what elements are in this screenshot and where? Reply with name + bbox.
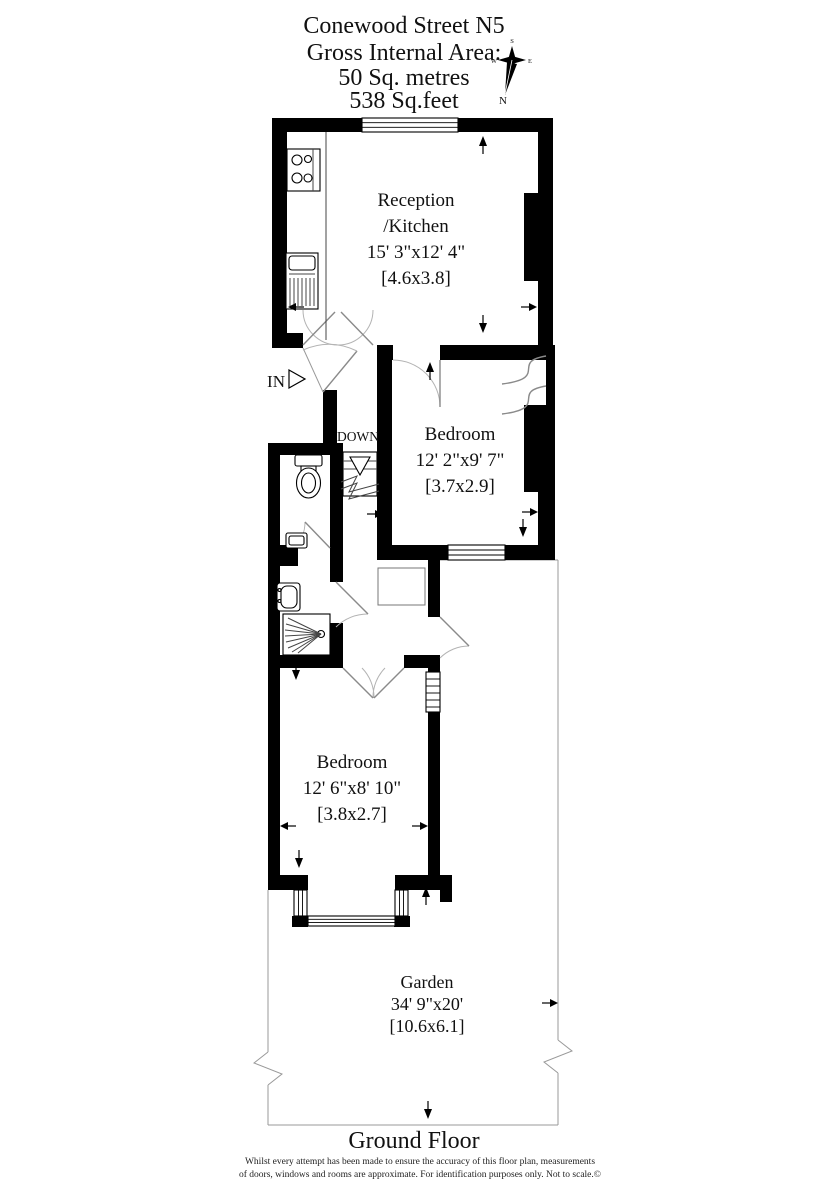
compass-east-label: E <box>528 58 532 65</box>
garden-dims: 34' 9"x20' <box>391 994 463 1014</box>
bedroom1-door <box>393 360 440 407</box>
in-label: IN <box>267 372 285 391</box>
reception-name-line2: /Kitchen <box>383 216 449 237</box>
measure-arrow <box>280 822 296 830</box>
measure-arrow <box>424 1101 432 1119</box>
title-line-2: Gross Internal Area: <box>307 40 502 66</box>
in-arrow-icon <box>289 370 305 388</box>
down-label: DOWN <box>337 429 379 444</box>
title-line-1: Conewood Street N5 <box>303 13 504 39</box>
measure-arrow <box>521 303 537 311</box>
toilet-icon <box>295 455 322 498</box>
compass-north-label: N <box>499 95 507 107</box>
measure-arrow <box>479 315 487 333</box>
window-reception-top <box>362 118 458 132</box>
measure-arrow <box>542 999 558 1007</box>
bedroom1-metric: [3.7x2.9] <box>425 476 495 497</box>
shower-icon <box>283 614 330 655</box>
room-label-bedroom2: Bedroom 12' 6"x8' 10" [3.8x2.7] <box>303 752 401 825</box>
bedroom2-metric: [3.8x2.7] <box>317 804 387 825</box>
disclaimer-line2: of doors, windows and rooms are approxim… <box>239 1169 601 1180</box>
shower-room-fixtures <box>277 583 330 655</box>
garden-name: Garden <box>401 972 454 992</box>
window-bedroom1-bottom <box>448 545 505 560</box>
hall-cupboard <box>378 568 425 605</box>
bay-window-bedroom2 <box>294 890 408 926</box>
bedroom2-double-doors <box>343 668 404 698</box>
measure-arrow <box>295 850 303 868</box>
measure-arrow <box>522 508 538 516</box>
walls <box>268 118 555 927</box>
entry-french-doors <box>303 310 373 345</box>
stove-icon <box>287 149 320 191</box>
footer: Ground Floor Whilst every attempt has be… <box>239 1128 601 1180</box>
window-hall-garden <box>426 672 440 712</box>
bedroom2-dims: 12' 6"x8' 10" <box>303 778 401 799</box>
room-label-reception: Reception /Kitchen 15' 3"x12' 4" [4.6x3.… <box>367 190 465 289</box>
floorplan-page: Conewood Street N5 Gross Internal Area: … <box>0 0 835 1200</box>
bedroom2-name: Bedroom <box>317 752 388 773</box>
bedroom1-dims: 12' 2"x9' 7" <box>416 450 505 471</box>
measure-arrow <box>426 362 434 380</box>
stairs-down <box>341 452 379 499</box>
room-label-garden: Garden 34' 9"x20' [10.6x6.1] <box>390 972 465 1036</box>
chimney-breast-bedroom1 <box>524 405 555 492</box>
chimney-breast-reception <box>524 193 553 281</box>
measure-arrow <box>412 822 428 830</box>
title-line-4: 538 Sq.feet <box>349 88 459 114</box>
compass-south-label: S <box>510 38 514 45</box>
floor-label: Ground Floor <box>348 1128 479 1154</box>
entrance-marker: IN <box>267 370 305 391</box>
shower-basin-icon <box>277 583 300 611</box>
reception-dims: 15' 3"x12' 4" <box>367 242 465 263</box>
reception-name-line1: Reception <box>377 190 455 211</box>
shower-room-door <box>336 582 368 627</box>
disclaimer-line1: Whilst every attempt has been made to en… <box>245 1156 595 1167</box>
garden-back-door <box>440 617 469 658</box>
reception-metric: [4.6x3.8] <box>381 268 451 289</box>
measure-arrow <box>479 136 487 154</box>
bedroom1-name: Bedroom <box>425 424 496 445</box>
compass-west-label: W <box>491 58 498 65</box>
title-block: Conewood Street N5 Gross Internal Area: … <box>303 13 504 114</box>
entrance-door <box>303 344 357 392</box>
room-label-bedroom1: Bedroom 12' 2"x9' 7" [3.7x2.9] <box>416 424 505 497</box>
floorplan-svg: Conewood Street N5 Gross Internal Area: … <box>0 0 835 1200</box>
garden-metric: [10.6x6.1] <box>390 1016 465 1036</box>
kitchen-sink-icon <box>286 253 318 309</box>
wc-basin-icon <box>286 533 307 548</box>
measure-arrow <box>519 519 527 537</box>
